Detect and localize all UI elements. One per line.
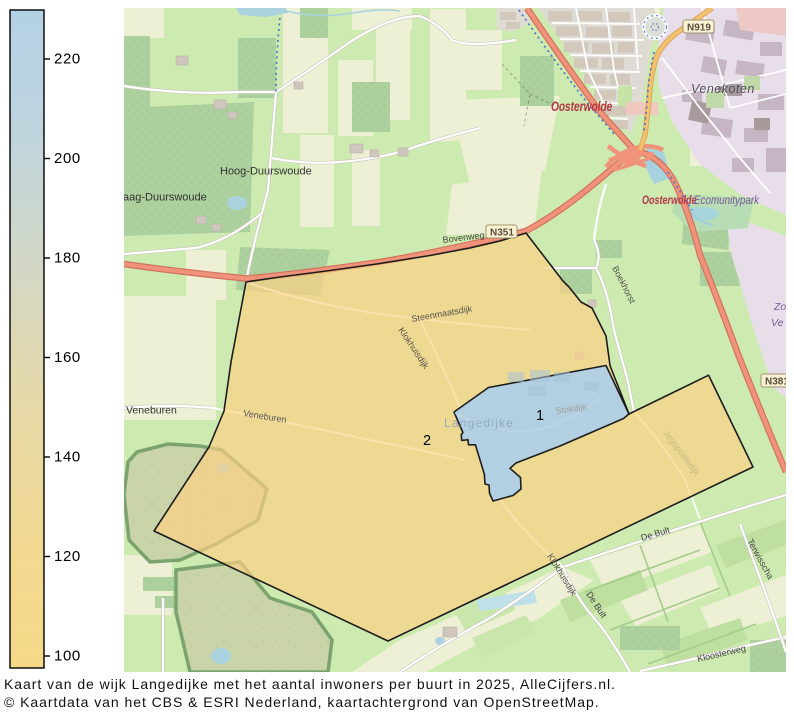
svg-text:Langedijke: Langedijke xyxy=(444,416,514,430)
svg-text:N919: N919 xyxy=(687,23,711,34)
svg-text:160: 160 xyxy=(54,349,81,366)
svg-text:Venekoten: Venekoten xyxy=(691,82,755,96)
svg-text:200: 200 xyxy=(54,150,81,167)
svg-text:1: 1 xyxy=(536,408,544,424)
svg-text:2: 2 xyxy=(423,433,431,449)
svg-text:220: 220 xyxy=(54,51,81,68)
svg-text:120: 120 xyxy=(54,548,81,565)
svg-text:© Kaartdata van het CBS & ESRI: © Kaartdata van het CBS & ESRI Nederland… xyxy=(4,694,600,710)
svg-text:Hoog-Duurswoude: Hoog-Duurswoude xyxy=(220,166,312,178)
svg-text:100: 100 xyxy=(54,648,81,665)
svg-text:Oosterwolde: Oosterwolde xyxy=(551,99,613,115)
svg-text:Ecomunitypark: Ecomunitypark xyxy=(694,194,760,207)
svg-text:140: 140 xyxy=(54,449,81,466)
svg-text:N381: N381 xyxy=(765,377,789,388)
svg-text:180: 180 xyxy=(54,250,81,267)
svg-text:Veneburen: Veneburen xyxy=(126,405,177,417)
svg-text:N351: N351 xyxy=(490,228,514,239)
svg-text:Zo: Zo xyxy=(773,301,786,313)
svg-text:Ve: Ve xyxy=(771,317,784,329)
svg-text:Kaart van de wijk Langedijke m: Kaart van de wijk Langedijke met het aan… xyxy=(4,676,616,692)
svg-text:aag-Duurswoude: aag-Duurswoude xyxy=(123,192,207,204)
svg-text:Oosterwolde: Oosterwolde xyxy=(642,194,697,208)
